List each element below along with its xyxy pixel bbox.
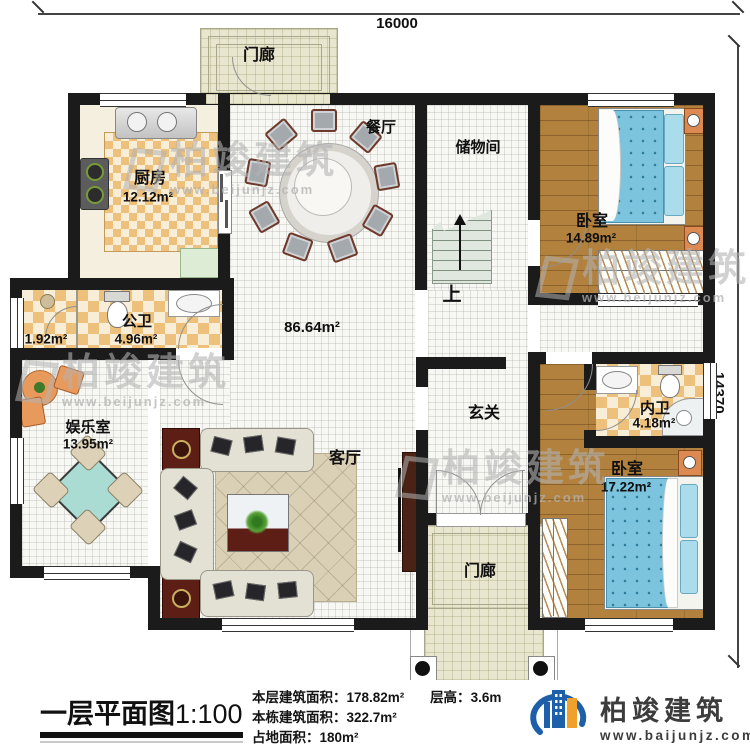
- wall: [416, 357, 506, 369]
- door-sill: [436, 513, 526, 527]
- porch-step-line: [424, 608, 542, 609]
- shower-drain: [676, 410, 692, 426]
- column-dot: [415, 661, 430, 676]
- door-leaf: [436, 470, 437, 514]
- label-kitchen: 厨房: [134, 170, 166, 188]
- stat-row: 占地面积：180m²: [252, 728, 501, 748]
- sofa-pillow: [275, 436, 296, 455]
- title-underline: [40, 732, 243, 738]
- wall: [10, 348, 176, 360]
- label-storage: 储物间: [455, 140, 500, 157]
- sofa-pillow: [245, 583, 266, 601]
- footer: 一层平面图1:100 本层建筑面积：178.82m² 层高：3.6m 本栋建筑面…: [0, 680, 750, 755]
- wall: [528, 352, 540, 630]
- floor-plan: 16000 14370: [0, 0, 750, 755]
- dim-tick: [32, 1, 45, 14]
- right-dimension-line: [737, 45, 739, 668]
- window: [100, 93, 186, 107]
- wall: [592, 352, 715, 364]
- dining-table-top: [294, 158, 352, 216]
- window: [585, 618, 673, 632]
- bed-pillow: [664, 114, 684, 164]
- sofa-pillow: [243, 435, 264, 453]
- wall: [416, 513, 436, 525]
- tv-cabinet: [402, 452, 417, 572]
- sliding-door-leaf: [220, 174, 223, 202]
- label-bath-private-area: 4.18m²: [633, 417, 676, 432]
- label-living: 客厅: [329, 450, 361, 468]
- brand-logo: 柏竣建筑 www.baijunjz.com: [524, 682, 750, 749]
- plan-title-block: 一层平面图1:100: [40, 692, 243, 731]
- nightstand: [684, 108, 705, 134]
- bed-blanket: [600, 110, 621, 221]
- chair: [244, 158, 271, 188]
- window: [10, 438, 24, 504]
- column-dot: [533, 661, 548, 676]
- label-foyer: 玄关: [468, 405, 500, 423]
- wall: [416, 357, 428, 387]
- plan-scale: 1:100: [175, 699, 243, 729]
- wall: [524, 513, 540, 525]
- dim-tick: [732, 1, 745, 14]
- brand-text-block: 柏竣建筑 www.baijunjz.com: [600, 689, 750, 743]
- label-bedroom2-area: 17.22m²: [601, 481, 651, 496]
- wall: [528, 93, 540, 220]
- stat-value: 178.82m²: [347, 690, 405, 705]
- stat-row: 本层建筑面积：178.82m² 层高：3.6m: [252, 688, 501, 708]
- stat-label: 本层建筑面积：: [252, 690, 347, 705]
- label-bedroom1-area: 14.89m²: [566, 232, 616, 247]
- label-dining: 餐厅: [366, 120, 396, 137]
- side-chair: [18, 396, 46, 428]
- floor-height-label: 层高：: [430, 690, 471, 705]
- bed-pillow: [664, 166, 684, 216]
- sliding-door-leaf: [225, 200, 228, 228]
- mop-basin: [40, 294, 55, 309]
- toilet-bowl: [660, 374, 680, 398]
- corner-table-deco: [172, 440, 191, 459]
- door-leaf: [522, 470, 523, 514]
- nightstand: [684, 226, 705, 252]
- tv-screen: [398, 468, 401, 552]
- porch-column: [528, 656, 555, 683]
- kitchen-sink-bowl: [157, 112, 177, 132]
- window: [703, 363, 717, 419]
- window: [44, 566, 130, 580]
- stat-value: 322.7m²: [347, 710, 397, 725]
- lamp: [687, 114, 700, 127]
- dimension-top: 16000: [376, 16, 418, 33]
- dim-tick: [728, 35, 741, 48]
- porch-column: [410, 656, 437, 683]
- window: [222, 618, 354, 632]
- bed-blanket: [662, 478, 678, 608]
- bed-pillow: [680, 484, 698, 538]
- wall: [10, 278, 234, 290]
- wardrobe-line: [598, 270, 703, 271]
- stat-value: 180m²: [320, 730, 359, 745]
- corridor-floor: [540, 305, 703, 352]
- wall: [68, 93, 80, 290]
- lamp: [683, 456, 696, 469]
- kitchen-mat: [180, 248, 220, 278]
- corner-table-deco: [172, 589, 191, 608]
- stairs-arrow-line: [459, 224, 461, 270]
- wardrobe-line: [553, 518, 554, 616]
- coffee-table-plant: [245, 510, 269, 534]
- stat-label: 占地面积：: [252, 730, 320, 745]
- label-hall-area: 86.64m²: [284, 320, 340, 337]
- wall: [222, 278, 234, 360]
- plan-stats: 本层建筑面积：178.82m² 层高：3.6m 本栋建筑面积：322.7m² 占…: [252, 688, 501, 748]
- kitchen-sink-bowl: [127, 112, 147, 132]
- window: [588, 93, 674, 107]
- label-bedroom1: 卧室: [576, 213, 608, 231]
- bath-sink: [602, 371, 632, 389]
- wall: [218, 93, 230, 170]
- brand-name: 柏竣建筑: [600, 689, 750, 728]
- plan-title: 一层平面图: [40, 699, 175, 729]
- label-entertainment-area: 13.95m²: [63, 438, 113, 453]
- chair: [311, 109, 337, 132]
- title-underline-light: [40, 741, 243, 743]
- label-bedroom2: 卧室: [611, 461, 643, 479]
- stove-burner: [86, 163, 104, 181]
- lamp: [687, 232, 700, 245]
- label-bath-public-area: 4.96m²: [115, 333, 158, 348]
- label-stairs-up: 上: [442, 286, 461, 307]
- label-kitchen-area: 12.12m²: [123, 191, 173, 206]
- wardrobe: [598, 250, 705, 294]
- stat-row: 本栋建筑面积：322.7m²: [252, 708, 501, 728]
- bed-pillow: [680, 540, 698, 594]
- label-bath-public: 公卫: [122, 314, 152, 331]
- window: [10, 298, 24, 348]
- label-bath-sub-area: 1.92m²: [25, 333, 68, 348]
- brand-url: www.baijunjz.com: [600, 728, 750, 743]
- brand-logo-icon: [524, 682, 594, 749]
- window: [598, 293, 698, 307]
- nightstand: [678, 450, 702, 476]
- sofa-pillow: [277, 581, 298, 599]
- stove-burner: [86, 186, 104, 204]
- wall: [415, 93, 427, 290]
- bed-mattress: [606, 478, 668, 608]
- stairs-arrow-head: [454, 214, 466, 225]
- wall: [584, 436, 703, 448]
- label-porch-bottom: 门廊: [464, 563, 496, 581]
- wardrobe: [542, 518, 568, 618]
- label-entertainment: 娱乐室: [65, 420, 110, 437]
- floor-height-value: 3.6m: [471, 690, 502, 705]
- stat-label: 本栋建筑面积：: [252, 710, 347, 725]
- wall: [218, 232, 230, 278]
- label-porch-top: 门廊: [243, 47, 275, 65]
- chair: [373, 162, 400, 192]
- fruit-table-plant: [34, 382, 45, 393]
